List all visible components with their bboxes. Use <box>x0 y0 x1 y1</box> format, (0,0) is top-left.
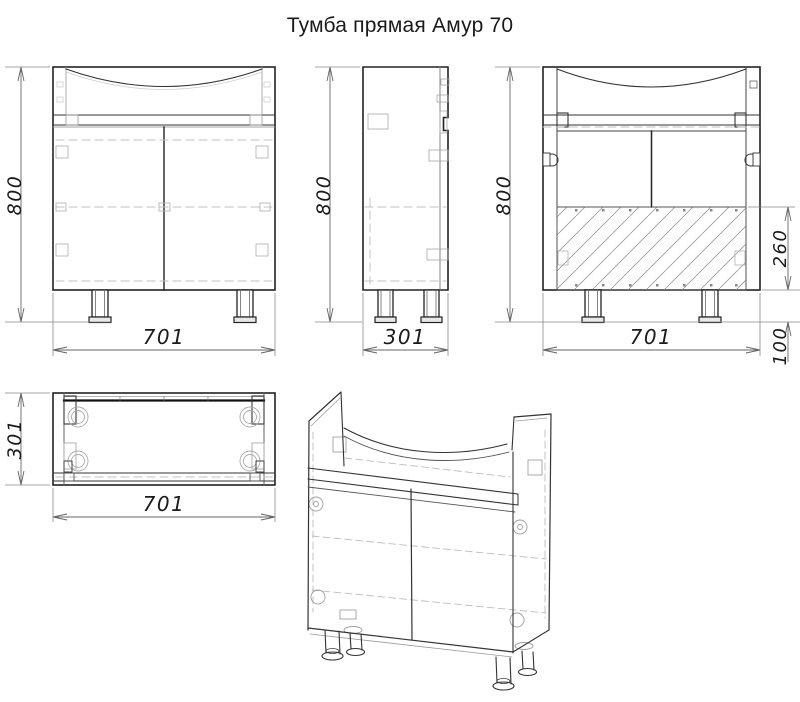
isometric-view <box>308 392 551 690</box>
top-view <box>53 393 275 485</box>
dim-back-width: 701 <box>630 325 673 349</box>
dim-top-depth: 301 <box>4 419 26 460</box>
front-dimensions <box>5 67 275 356</box>
drawing-sheet: Тумба прямая Амур 70 <box>0 0 800 702</box>
dim-front-height: 800 <box>4 175 26 216</box>
dim-top-width: 701 <box>143 492 186 516</box>
dim-side-height: 800 <box>313 175 335 216</box>
dim-side-depth: 301 <box>384 325 427 349</box>
front-legs <box>89 290 256 323</box>
back-panel-hatch <box>557 207 746 290</box>
side-legs <box>375 290 442 323</box>
top-dimensions <box>5 393 275 522</box>
dim-front-width: 701 <box>143 325 186 349</box>
back-legs <box>582 290 721 323</box>
dim-back-height: 800 <box>493 175 515 216</box>
dim-back-panel-height: 260 <box>770 229 791 268</box>
back-view <box>543 67 760 323</box>
front-view <box>53 67 275 323</box>
dim-back-leg-height: 100 <box>770 327 791 366</box>
technical-drawing: 800 701 <box>0 0 800 702</box>
side-view <box>363 67 449 323</box>
